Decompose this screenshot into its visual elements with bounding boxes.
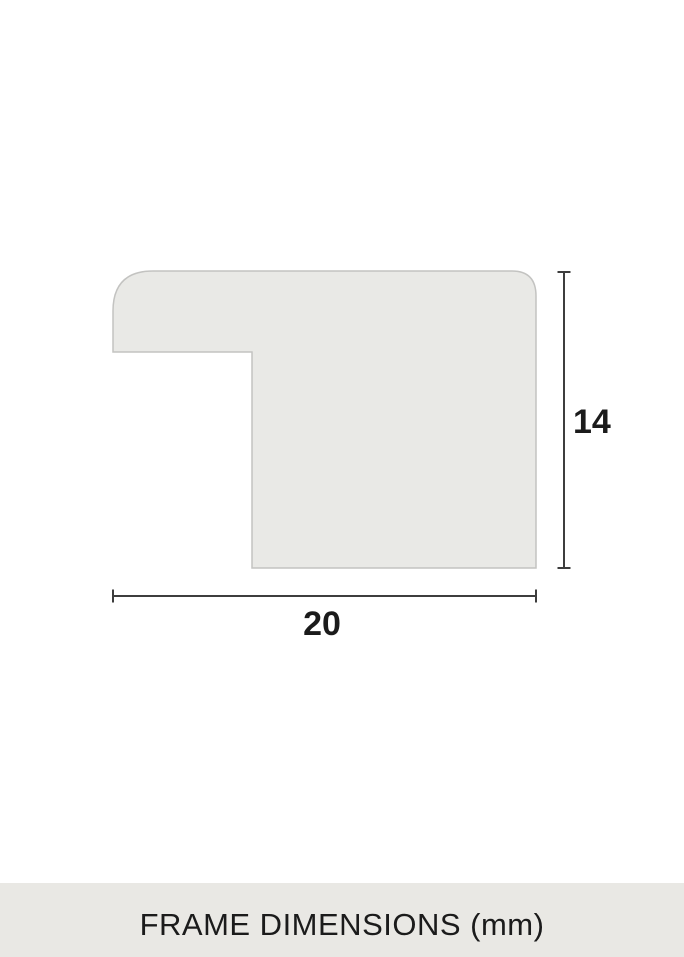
footer-caption: FRAME DIMENSIONS (mm) <box>140 907 545 943</box>
width-dimension-line <box>113 590 536 603</box>
width-dimension-label: 20 <box>303 605 341 643</box>
frame-profile-diagram: 14 20 <box>0 0 684 700</box>
frame-profile-shape <box>113 271 536 568</box>
height-dimension-label: 14 <box>573 403 611 441</box>
footer-bar: FRAME DIMENSIONS (mm) <box>0 883 684 957</box>
height-dimension-line <box>558 272 571 568</box>
